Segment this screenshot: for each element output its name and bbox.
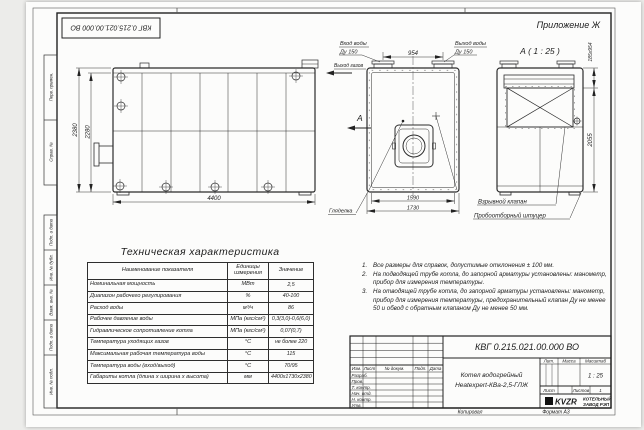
tb-row-nachotd: Нач. отд. [352, 391, 372, 396]
param-value: 0,3(3,0)-0,6(6,0) [269, 314, 314, 326]
tb-listov-value: 1 [599, 388, 602, 393]
table-row: Номинальная мощностьМВт2,5 [88, 280, 314, 292]
param-name: Гидравлическое сопротивление котла [88, 326, 228, 338]
tb-row-tkontr: Т. контр. [352, 385, 371, 390]
dim-front-width-inner: 1590 [407, 196, 420, 202]
label-water-inlet-dn: Ду 150 [339, 50, 358, 56]
note-text: На отводящей трубе котла, до запорной ар… [373, 288, 610, 314]
param-value: 0,07(0,7) [269, 326, 314, 338]
param-name: Номинальная мощность [88, 280, 228, 292]
dim-section-height: 2055 [588, 133, 594, 148]
tech-table-header-row: Наименование показателя Единицы измерени… [88, 263, 314, 280]
tech-th-units: Единицы измерения [228, 263, 269, 280]
dim-front-top: 954 [408, 51, 419, 57]
frame-label-sprav-no: Справ. № [49, 142, 54, 162]
side-view [94, 60, 318, 195]
note-number: 3. [362, 288, 373, 314]
kopiroval-label: Копировал [458, 410, 483, 416]
param-value: 86 [269, 303, 314, 315]
tb-col-izm: Изм. [352, 366, 362, 371]
stamp-doc-number: КВГ 0.215.021.00.000 ВО [70, 24, 152, 31]
tb-doc-number: КВГ 0.215.021.00.000 ВО [475, 342, 579, 352]
label-water-outlet: Выход воды [455, 41, 486, 47]
drawing-notes: 1. Все размеры для справок, допустимые о… [362, 262, 610, 314]
param-name: Диапазон рабочего регулирования [88, 291, 228, 303]
frame-left-labels: Перв. примен. Справ. № Подп. и дата Инв.… [49, 73, 54, 395]
table-row: Рабочее давление водыМПа (кгс/см²)0,3(3,… [88, 314, 314, 326]
tb-col-data: Дата [429, 366, 442, 371]
burner-door [393, 125, 436, 167]
param-units: °С [228, 337, 269, 349]
section-a-title: А ( 1 : 25 ) [519, 46, 560, 56]
param-name: Рабочее давление воды [88, 314, 228, 326]
table-row: Диапазон рабочего регулирования%40-100 [88, 291, 314, 303]
technical-characteristics: Техническая характеристика Наименование … [87, 246, 313, 384]
param-units: % [228, 291, 269, 303]
logo-square-icon [545, 397, 553, 405]
note-number: 2. [362, 271, 373, 288]
front-view-dimensions [328, 47, 487, 215]
frame-label-podp-data-2: Подп. и дата [49, 323, 54, 351]
param-units: °С [228, 349, 269, 361]
frame-label-inv-podl: Инв. № подл. [49, 368, 54, 395]
tb-masshtab-label: Масштаб [585, 359, 606, 364]
dim-side-length: 4400 [207, 196, 221, 202]
section-a-dimensions [473, 68, 598, 219]
logo-text: KVZR [555, 398, 577, 407]
frame-label-podp-data-1: Подп. и дата [49, 218, 54, 246]
param-value: 4400х1730х2380 [269, 372, 314, 384]
tb-scale-value: 1 : 25 [588, 374, 604, 380]
param-units: °С [228, 361, 269, 373]
frame-label-inv-dubl: Инв. № дубл. [49, 254, 54, 280]
tb-list-label: Лист [542, 388, 555, 393]
table-row: Расход водым³/ч86 [88, 303, 314, 315]
tb-col-podp: Подп. [415, 366, 427, 371]
table-row: Габариты котла (длина х ширина х высота)… [88, 372, 314, 384]
side-view-dimensions [76, 68, 315, 205]
param-units: мм [228, 372, 269, 384]
tb-row-razrab: Разраб. [352, 373, 368, 378]
top-stamp: КВГ 0.215.021.00.000 ВО [62, 18, 160, 38]
tech-table-title: Техническая характеристика [87, 246, 313, 258]
note-text: Все размеры для справок, допустимые откл… [373, 262, 610, 271]
lifting-lug-symbols [113, 69, 303, 194]
drawing-viewport: Перв. примен. Справ. № Подп. и дата Инв.… [0, 0, 644, 430]
section-arrow-letter: А [356, 113, 363, 123]
note-item: 3. На отводящей трубе котла, до запорной… [362, 288, 610, 314]
param-name: Габариты котла (длина х ширина х высота) [88, 372, 228, 384]
param-name: Расход воды [88, 303, 228, 315]
note-number: 1. [362, 262, 373, 271]
company-name-line1: КОТЕЛЬНЫЙ [583, 397, 612, 402]
tb-lit-label: Лит. [543, 359, 555, 364]
dim-side-height-outer: 2380 [73, 123, 79, 138]
param-name: Температура воды (вход/выход) [88, 361, 228, 373]
side-pipe-stub [94, 143, 113, 166]
param-units: МПа (кгс/см²) [228, 314, 269, 326]
frame-label-perv-primen: Перв. примен. [49, 73, 54, 102]
label-sight-glass: Гляделка [329, 209, 352, 215]
company-name-line2: ЗАВОД РЭП [583, 402, 610, 407]
param-value: 115 [269, 349, 314, 361]
dim-front-width-outer: 1730 [407, 206, 420, 212]
note-text: На подводящей трубе котла, до запорной а… [373, 271, 610, 288]
tb-listov-label: Листов [572, 388, 590, 393]
label-sampling-fitting: Пробоотборный штуцер [474, 213, 546, 220]
company-logo: KVZR КОТЕЛЬНЫЙ ЗАВОД РЭП [545, 397, 612, 408]
param-name: Максимальная рабочая температура воды [88, 349, 228, 361]
tb-massa-label: Масса [562, 359, 576, 364]
explosion-valve-assembly [504, 75, 582, 129]
param-units: МВт [228, 280, 269, 292]
tb-row-nkontr: Н. контр. [352, 397, 372, 402]
tb-product-name-2: Heatexpert-КВа-2,5-ГЛЖ [455, 382, 529, 389]
label-explosion-valve: Взрывной клапан [478, 199, 527, 206]
param-units: МПа (кгс/см²) [228, 326, 269, 338]
table-row: Гидравлическое сопротивление котлаМПа (к… [88, 326, 314, 338]
tb-product-name-1: Котел водогрейный [461, 371, 523, 379]
label-water-outlet-dn: Ду 150 [454, 50, 473, 56]
table-row: Максимальная рабочая температура воды°С1… [88, 349, 314, 361]
frame-label-vzam-inv: Взам. инв. № [49, 289, 54, 316]
tech-th-value: Значение [269, 263, 314, 280]
gas-flow-arrow [326, 71, 352, 76]
section-a-nozzles [500, 61, 575, 68]
param-name: Температура уходящих газов [88, 337, 228, 349]
tb-col-doc: № докум. [385, 366, 405, 371]
param-value: 2,5 [269, 280, 314, 292]
param-value: не более 220 [269, 337, 314, 349]
front-view [356, 56, 459, 213]
note-item: 2. На подводящей трубе котла, до запорно… [362, 271, 610, 288]
tb-row-prov: Пров. [352, 379, 364, 384]
tb-col-list: Лист [363, 366, 376, 371]
param-value: 40-100 [269, 291, 314, 303]
tech-table: Наименование показателя Единицы измерени… [87, 262, 314, 384]
note-item: 1. Все размеры для справок, допустимые о… [362, 262, 610, 271]
label-gas-outlet: Выход газов [334, 63, 364, 69]
param-value: 70/95 [269, 361, 314, 373]
appendix-label: Приложение Ж [537, 20, 601, 30]
table-row: Температура уходящих газов°Сне более 220 [88, 337, 314, 349]
label-water-inlet: Вход воды [340, 41, 367, 47]
tech-th-name: Наименование показателя [88, 263, 228, 280]
tb-row-utv: Утв. [352, 403, 362, 408]
table-row: Температура воды (вход/выход)°С70/95 [88, 361, 314, 373]
dim-side-height-inner: 2280 [86, 125, 92, 140]
section-a-view [497, 61, 583, 195]
param-units: м³/ч [228, 303, 269, 315]
dim-section-top: 185х954 [588, 42, 594, 61]
format-label: Формат А3 [542, 410, 570, 416]
